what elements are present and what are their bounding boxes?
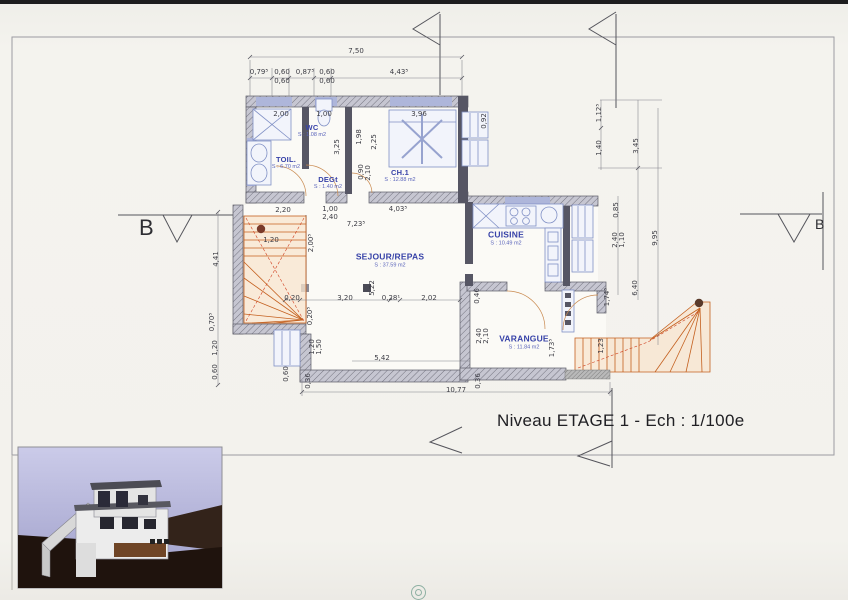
dimension-label: 2,10 [482,328,490,344]
dimension-label: 7,23⁵ [347,220,365,228]
dimension-label: 4,43⁵ [390,68,408,76]
dimension-label: 1,40 [595,140,603,156]
dimension-label: 0,60 [274,77,290,85]
dimension-label: 0,46 [473,288,481,304]
stair-post [695,299,703,307]
dimension-label: 4,41 [212,251,220,267]
scanned-sheet: WC S : 1.08 m2 TOIL. S : 6.70 m2 DEGt S … [0,0,848,600]
dimension-label: 2,25 [370,134,378,150]
stamp-icon [411,585,426,600]
kitchen-counter [473,204,563,228]
dimension-label: 2,00⁵ [307,234,315,252]
dimension-label: 0,60 [211,364,219,380]
room-label-cuisine: CUISINE S : 10.49 m2 [488,229,524,247]
sink-symbol [251,164,267,182]
dimension-label: 1,98 [355,129,363,145]
dimension-label: 1,10 [618,232,626,248]
dimension-label: 6,40 [631,280,639,296]
dimension-label: 0,20 [284,294,300,302]
dimension-label: 0,28¹ [382,294,400,302]
house-3d-render [18,447,222,588]
dimension-label: 0,87⁵ [296,68,314,76]
dimension-label: 1,00 [316,110,332,118]
dimension-label: 3,25 [333,139,341,155]
dimension-label: 1,12⁵ [595,104,603,122]
dimension-label: 5,42 [374,354,390,362]
sink-symbol [251,144,267,162]
dimension-label: 1,23 [597,338,605,354]
concrete-slab [565,370,610,379]
dimension-label: 0,79⁵ [250,68,268,76]
dimension-label: 0,36 [474,373,482,389]
dimension-label: 2,00 [273,110,289,118]
dimension-label: 2,02 [421,294,437,302]
dimension-label: 1,73⁵ [548,339,556,357]
sink-round [541,207,557,223]
dimension-label: 0,60 [319,68,335,76]
dimension-label: 0,60 [274,68,290,76]
dimension-label: 1,00 [322,205,338,213]
section-letter-left: B [139,215,154,241]
room-label-ch1: CH.1 S : 12.88 m2 [384,168,415,184]
dimension-label: 1,50 [315,339,323,355]
dimension-label: 1,74⁵ [603,288,611,306]
dimension-label: 0,60 [319,77,335,85]
dimension-label: 0,36 [304,373,312,389]
room-label-toil: TOIL. S : 6.70 m2 [272,155,300,171]
dimension-label: 0,20⁵ [306,307,314,325]
kitchen-tall-unit [545,228,561,282]
dimension-label: 9,95 [651,230,659,246]
dimension-label: 2,10 [364,165,372,181]
dimension-label: 0,85 [612,202,620,218]
balustrade [562,290,574,332]
dimension-label: 3,45 [632,138,640,154]
stair-post [257,225,265,233]
dimension-label: 3,20 [337,294,353,302]
dimension-label: 0,60 [282,366,290,382]
dimension-label: 0,92 [480,113,488,129]
room-label-varangue: VARANGUE S : 11.84 m2 [499,333,549,351]
dimension-label: 1,20 [263,236,279,244]
room-label-degt: DEGt S : 1.40 m2 [314,175,342,191]
dimension-label: 4,03⁵ [389,205,407,213]
dimension-label: 2,40 [322,213,338,221]
interior-staircase [244,216,306,323]
dimension-label: 2,20 [275,206,291,214]
dimension-label: 7,50 [348,47,364,55]
dimension-label: 0,70⁵ [208,313,216,331]
louvre-sejour [274,330,300,366]
dimension-label: 1,20 [211,340,219,356]
stove-burner [510,208,518,216]
dimension-label: 10,77 [446,386,466,394]
room-label-sejour: SEJOUR/REPAS S : 37.59 m2 [356,251,424,269]
dimension-label: 5,22 [368,280,376,296]
plan-title: Niveau ETAGE 1 - Ech : 1/100e [497,411,744,431]
room-label-wc: WC S : 1.08 m2 [298,123,326,139]
section-letter-right: B [815,216,824,232]
dimension-label: 3,96 [411,110,427,118]
